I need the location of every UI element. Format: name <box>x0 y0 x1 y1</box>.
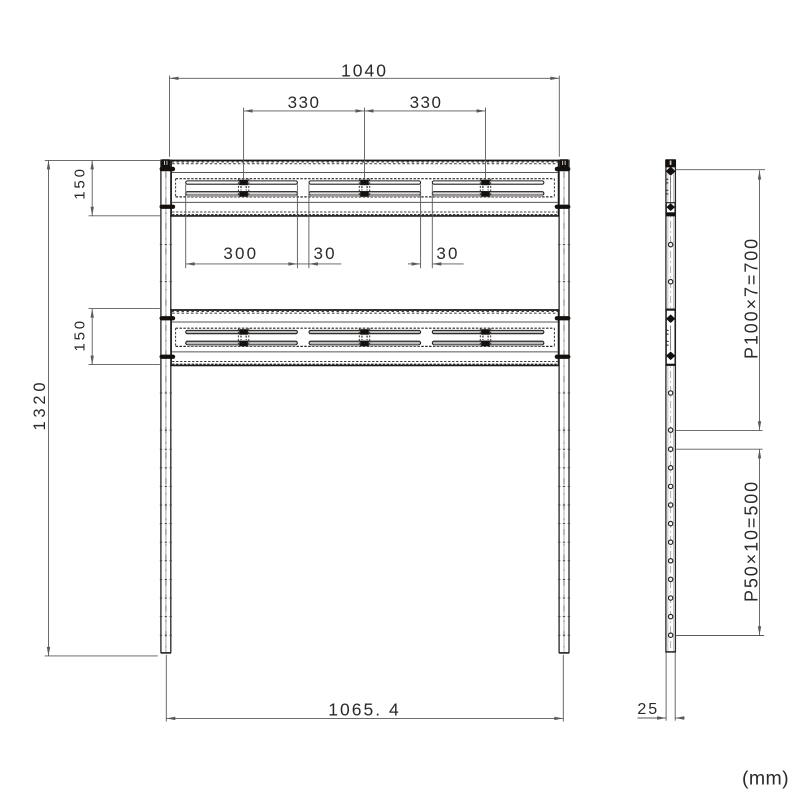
svg-text:1040: 1040 <box>341 61 388 81</box>
svg-text:30: 30 <box>436 244 459 263</box>
svg-text:330: 330 <box>288 93 321 112</box>
svg-text:150: 150 <box>72 318 89 351</box>
svg-text:(mm): (mm) <box>742 767 789 789</box>
svg-text:30: 30 <box>314 244 337 263</box>
svg-text:25: 25 <box>637 701 659 718</box>
svg-text:P100×7=700: P100×7=700 <box>742 237 762 359</box>
svg-text:300: 300 <box>223 244 258 263</box>
svg-text:1065. 4: 1065. 4 <box>328 700 400 720</box>
svg-text:150: 150 <box>72 166 89 199</box>
svg-text:1320: 1320 <box>31 379 49 431</box>
svg-text:330: 330 <box>410 93 443 112</box>
svg-text:P50×10=500: P50×10=500 <box>742 480 762 602</box>
